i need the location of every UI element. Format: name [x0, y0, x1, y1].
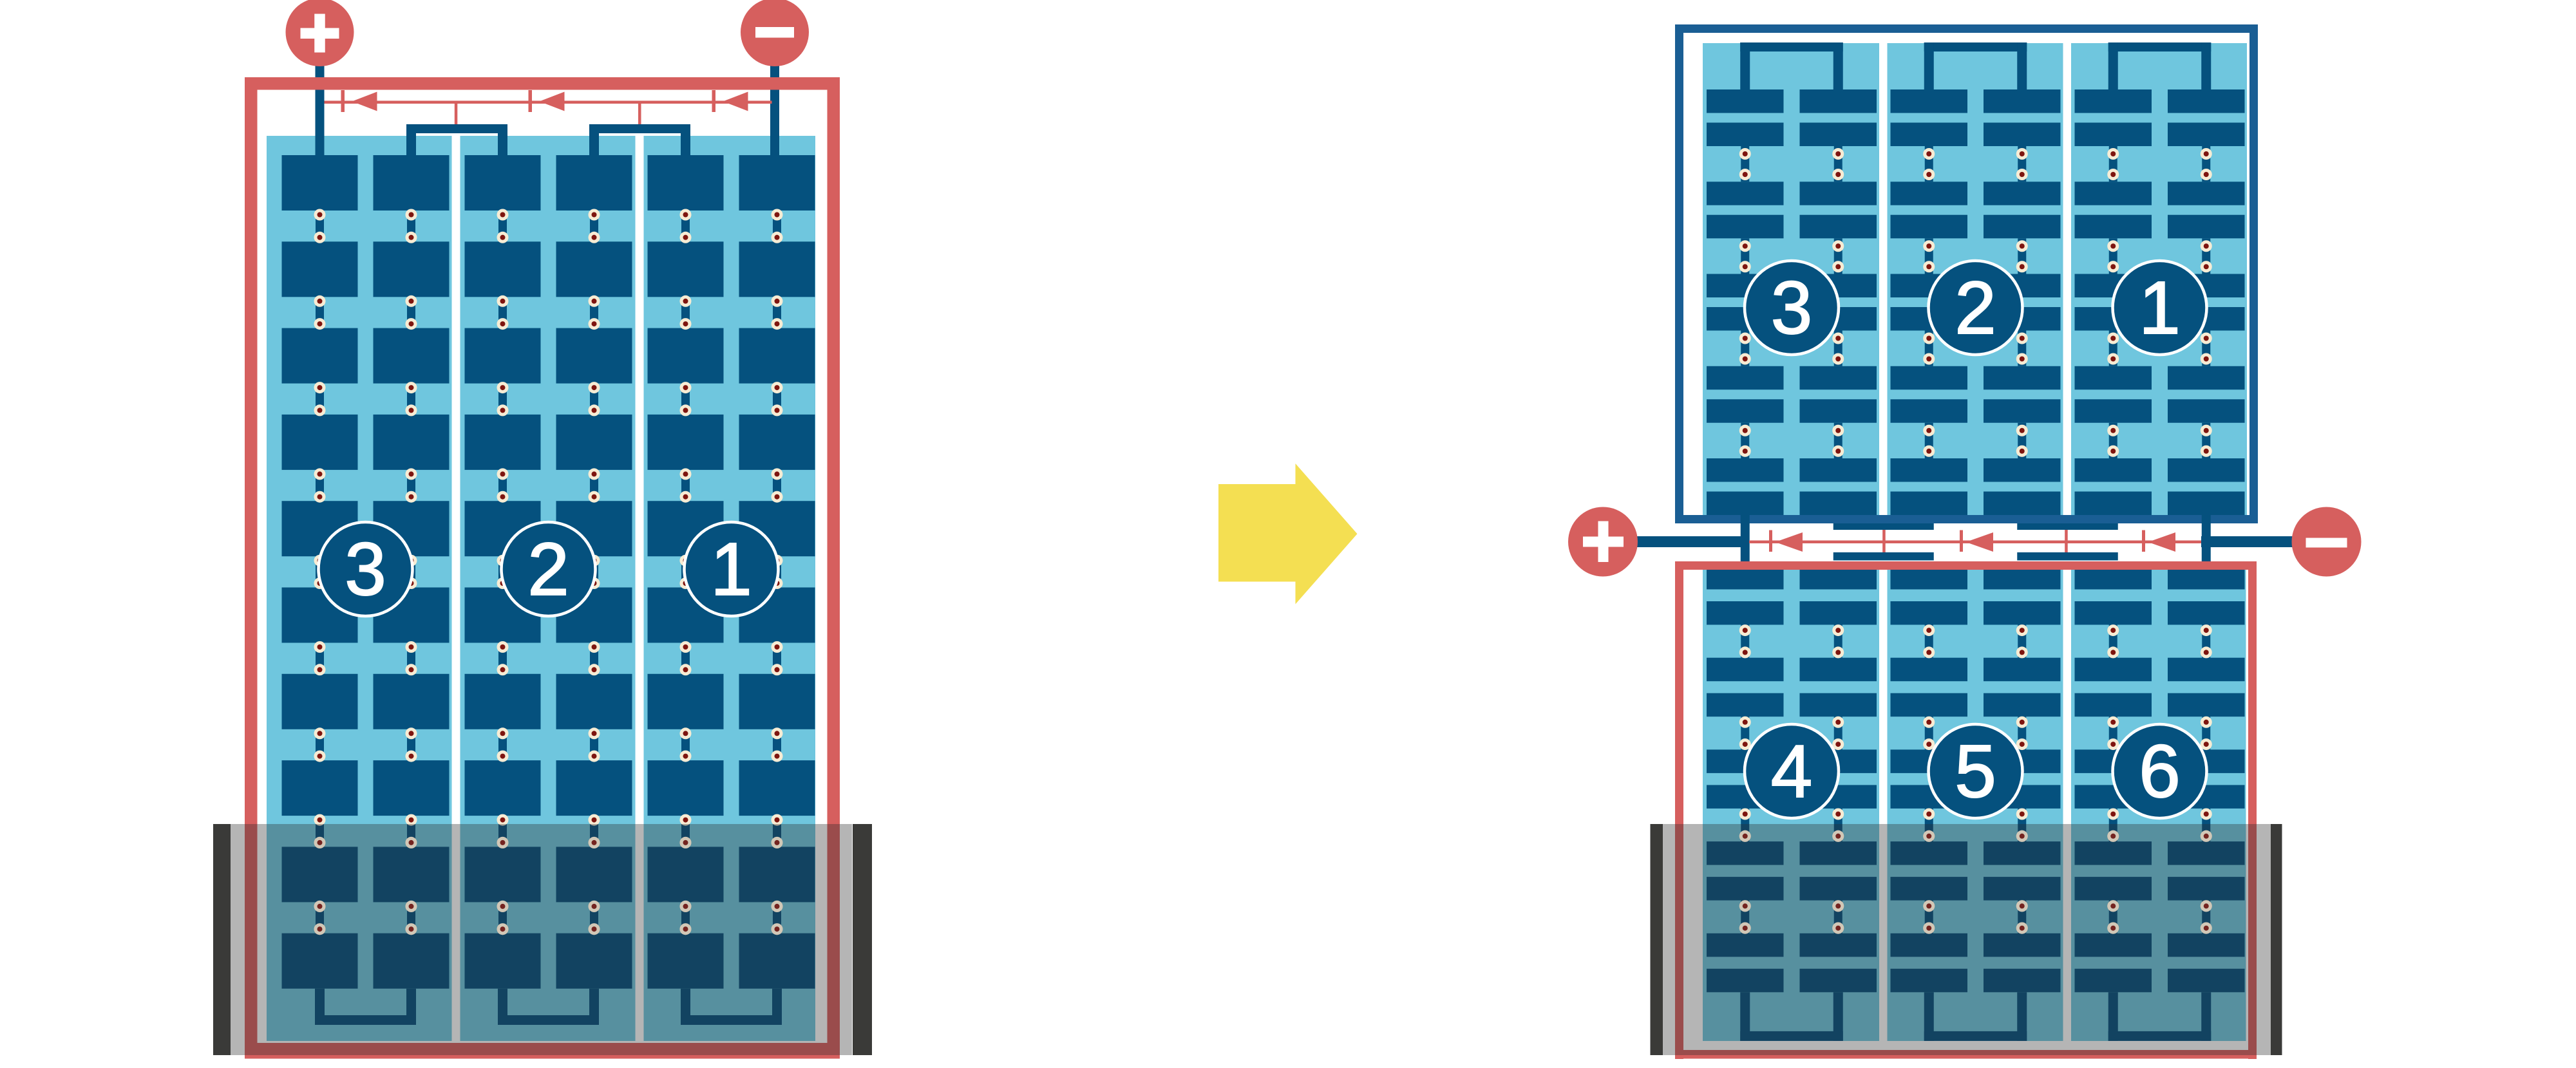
- svg-text:5: 5: [1955, 729, 1996, 813]
- svg-text:2: 2: [1955, 266, 1996, 350]
- svg-text:1: 1: [710, 527, 752, 611]
- svg-text:2: 2: [527, 527, 569, 611]
- svg-text:3: 3: [1771, 266, 1813, 350]
- svg-text:4: 4: [1771, 729, 1813, 813]
- svg-text:1: 1: [2139, 266, 2181, 350]
- svg-text:3: 3: [345, 527, 386, 611]
- svg-text:6: 6: [2139, 729, 2181, 813]
